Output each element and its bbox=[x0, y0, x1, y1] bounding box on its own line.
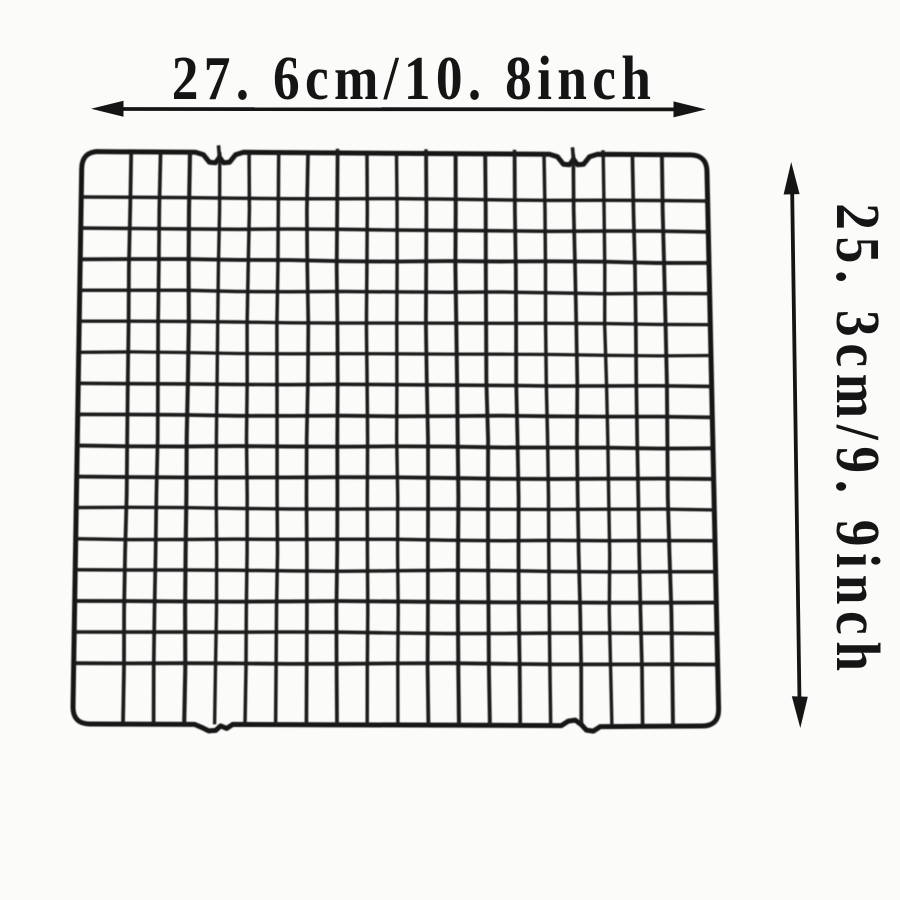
svg-text:27. 6cm/10. 8inch: 27. 6cm/10. 8inch bbox=[172, 43, 657, 113]
svg-text:25. 3cm/9. 9inch: 25. 3cm/9. 9inch bbox=[823, 203, 893, 678]
